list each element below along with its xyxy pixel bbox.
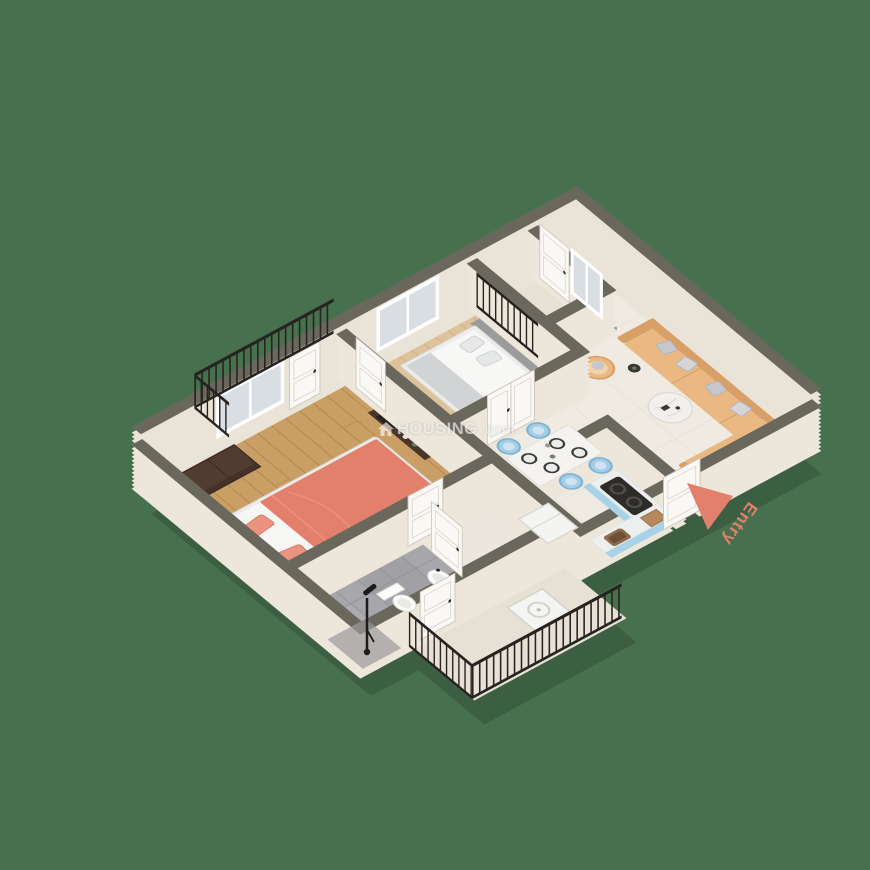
floor-plan-render: Entry HOUSING.com [0, 0, 870, 870]
watermark-tld: .com [481, 421, 516, 438]
watermark-brand: HOUSING [397, 420, 478, 439]
house-icon [378, 422, 394, 437]
watermark: HOUSING.com [378, 420, 515, 439]
